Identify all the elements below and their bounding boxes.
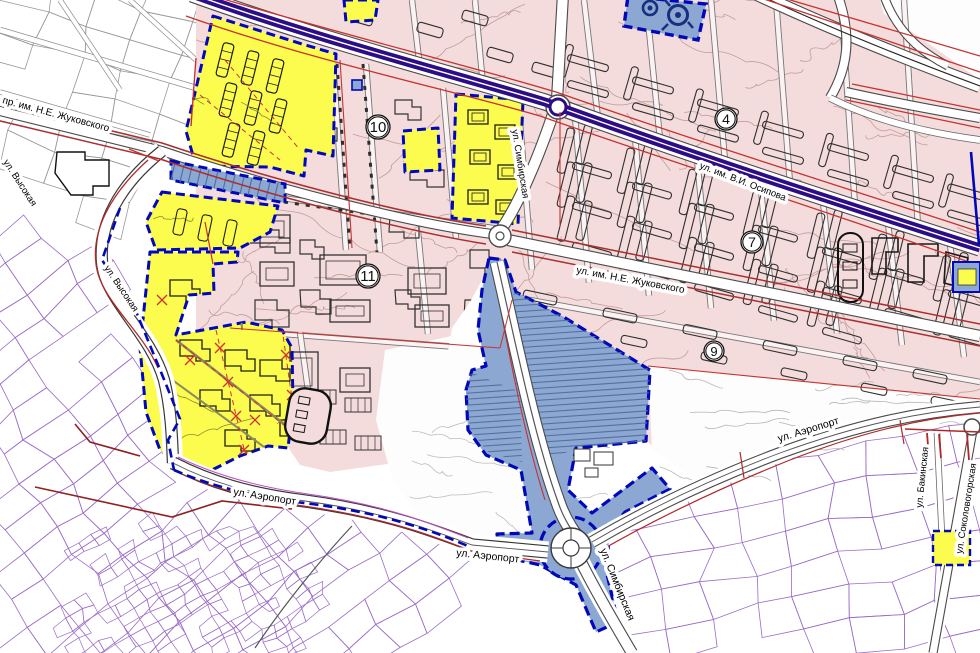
svg-text:10: 10 bbox=[370, 119, 387, 136]
svg-text:4: 4 bbox=[722, 111, 730, 127]
svg-text:11: 11 bbox=[360, 268, 376, 285]
svg-text:7: 7 bbox=[748, 234, 756, 250]
svg-text:9: 9 bbox=[710, 344, 717, 359]
